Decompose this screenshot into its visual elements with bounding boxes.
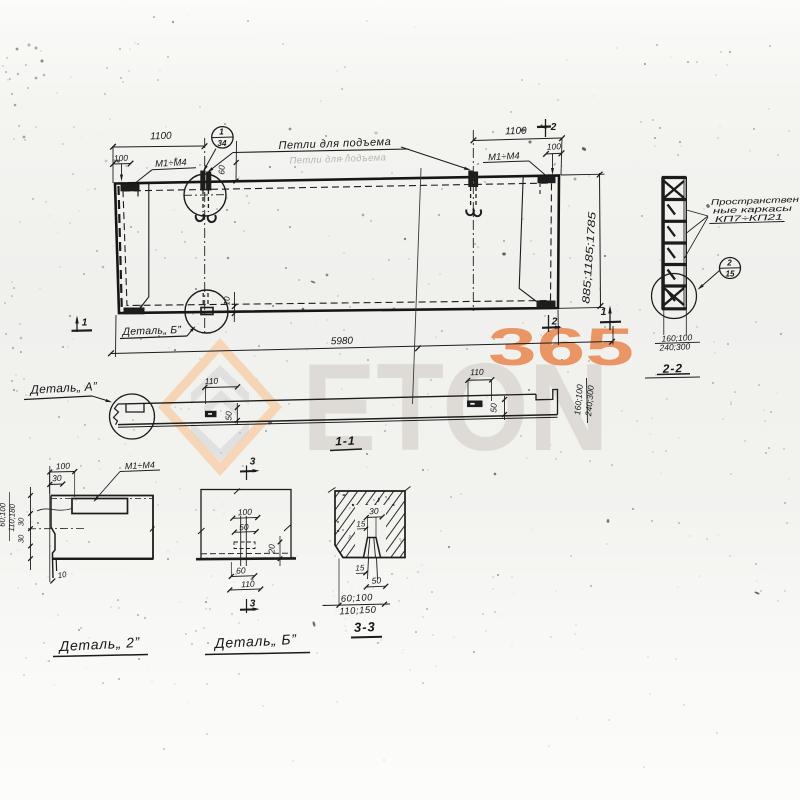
svg-text:1: 1 <box>82 318 88 329</box>
svg-text:34: 34 <box>218 139 227 148</box>
svg-text:110: 110 <box>470 367 484 377</box>
svg-text:100: 100 <box>237 507 252 518</box>
svg-text:110: 110 <box>204 376 218 386</box>
svg-text:15: 15 <box>726 270 735 279</box>
svg-text:М1÷М4: М1÷М4 <box>125 460 155 472</box>
svg-text:100: 100 <box>547 141 562 151</box>
svg-text:110;150: 110;150 <box>339 605 377 618</box>
svg-text:60;100: 60;100 <box>341 592 374 605</box>
svg-text:М1÷М4: М1÷М4 <box>155 157 187 170</box>
svg-text:2: 2 <box>551 317 558 328</box>
svg-text:3: 3 <box>250 457 256 468</box>
svg-text:3-3: 3-3 <box>354 619 376 635</box>
svg-text:5980: 5980 <box>331 336 354 348</box>
svg-text:110;180: 110;180 <box>7 503 17 532</box>
svg-text:1: 1 <box>601 307 607 318</box>
svg-text:1-1: 1-1 <box>335 434 356 449</box>
svg-text:30: 30 <box>369 506 379 516</box>
svg-text:1100: 1100 <box>505 126 527 138</box>
svg-text:100: 100 <box>55 461 70 472</box>
svg-text:2: 2 <box>550 122 557 133</box>
svg-text:50: 50 <box>223 411 233 421</box>
svg-text:240;300: 240;300 <box>658 341 690 353</box>
svg-text:2: 2 <box>726 259 732 268</box>
svg-text:1100: 1100 <box>150 131 172 143</box>
svg-text:50: 50 <box>488 403 498 413</box>
svg-text:365: 365 <box>488 318 634 377</box>
svg-text:50: 50 <box>371 575 381 585</box>
svg-text:60: 60 <box>216 165 226 175</box>
svg-text:10: 10 <box>222 296 231 306</box>
svg-text:30: 30 <box>52 473 62 483</box>
svg-text:1: 1 <box>219 128 224 137</box>
svg-text:30: 30 <box>16 517 25 526</box>
svg-text:15: 15 <box>356 519 366 528</box>
svg-text:50: 50 <box>239 522 249 532</box>
svg-text:20: 20 <box>266 544 276 555</box>
svg-text:15: 15 <box>355 563 365 572</box>
svg-text:30: 30 <box>16 534 25 543</box>
svg-text:60;100: 60;100 <box>0 502 7 527</box>
svg-text:60: 60 <box>236 565 246 575</box>
svg-text:110: 110 <box>241 579 255 590</box>
